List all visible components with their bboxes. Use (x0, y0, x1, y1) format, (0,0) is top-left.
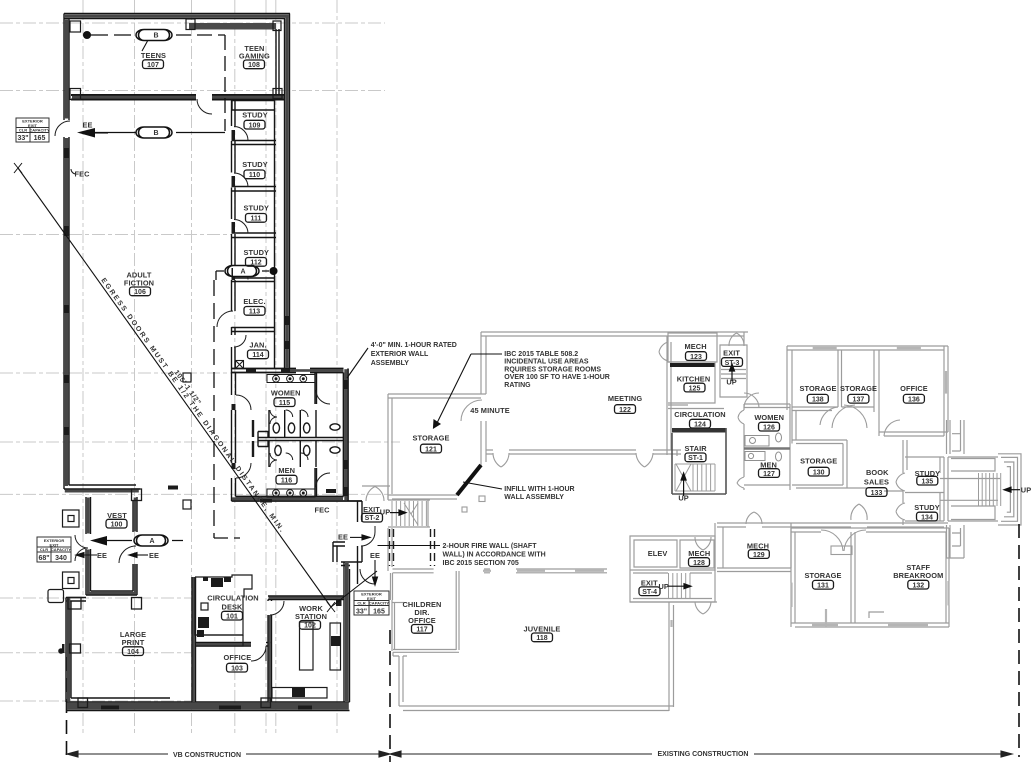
svg-text:SALES: SALES (864, 478, 889, 487)
svg-text:INFILL WITH 1-HOUR: INFILL WITH 1-HOUR (504, 486, 574, 493)
svg-text:121: 121 (425, 446, 437, 453)
svg-text:EE: EE (338, 533, 348, 542)
svg-text:117: 117 (416, 627, 427, 634)
svg-text:STORAGE: STORAGE (840, 384, 877, 393)
svg-text:45 MINUTE: 45 MINUTE (470, 406, 510, 415)
svg-text:104: 104 (127, 649, 139, 656)
svg-text:ELEC.: ELEC. (243, 297, 265, 306)
svg-text:PRINT: PRINT (122, 638, 145, 647)
svg-text:130: 130 (813, 469, 825, 476)
svg-text:STUDY: STUDY (242, 160, 268, 169)
svg-text:UP: UP (380, 508, 390, 517)
svg-text:GAMING: GAMING (239, 51, 270, 60)
svg-text:135: 135 (921, 478, 933, 485)
svg-text:STAIR: STAIR (685, 444, 708, 453)
svg-text:133: 133 (871, 490, 883, 497)
svg-text:102: 102 (304, 623, 316, 630)
svg-text:FEC: FEC (314, 506, 330, 515)
svg-text:128: 128 (693, 560, 705, 567)
svg-text:RQUIRES STORAGE ROOMS: RQUIRES STORAGE ROOMS (504, 366, 601, 373)
svg-text:138: 138 (812, 397, 824, 404)
svg-text:127: 127 (763, 471, 775, 478)
svg-text:STUDY: STUDY (915, 469, 941, 478)
svg-text:MEETING: MEETING (608, 394, 643, 403)
svg-text:136: 136 (908, 397, 920, 404)
svg-text:107: 107 (147, 62, 159, 69)
svg-text:134: 134 (921, 514, 933, 521)
svg-text:CAPACITY: CAPACITY (29, 128, 49, 133)
svg-text:108: 108 (248, 62, 260, 69)
svg-text:123: 123 (690, 354, 702, 361)
svg-text:126: 126 (763, 424, 775, 431)
svg-text:B: B (153, 130, 158, 137)
svg-text:STORAGE: STORAGE (800, 457, 837, 466)
svg-text:165: 165 (34, 135, 46, 142)
svg-text:VB CONSTRUCTION: VB CONSTRUCTION (173, 752, 241, 759)
svg-text:101: 101 (226, 613, 238, 620)
svg-text:ELEV: ELEV (648, 549, 668, 558)
svg-text:EXIT: EXIT (723, 349, 740, 358)
svg-text:STORAGE: STORAGE (412, 434, 449, 443)
svg-text:STUDY: STUDY (244, 204, 270, 213)
svg-text:OFFICE: OFFICE (900, 384, 928, 393)
svg-text:WOMEN: WOMEN (754, 413, 784, 422)
svg-text:STORAGE: STORAGE (799, 384, 836, 393)
svg-text:100: 100 (111, 521, 123, 528)
svg-text:A: A (149, 538, 154, 545)
svg-text:STORAGE: STORAGE (804, 571, 841, 580)
svg-text:EXTERIOR WALL: EXTERIOR WALL (371, 351, 429, 358)
svg-text:UP: UP (658, 582, 668, 591)
svg-text:OFFICE: OFFICE (224, 653, 252, 662)
svg-text:RATING: RATING (504, 382, 531, 389)
svg-text:TEENS: TEENS (141, 51, 166, 60)
svg-text:VEST: VEST (107, 511, 127, 520)
svg-text:INCIDENTAL USE AREAS: INCIDENTAL USE AREAS (504, 359, 589, 366)
svg-text:MECH: MECH (685, 342, 707, 351)
svg-text:103: 103 (231, 665, 243, 672)
svg-text:MEN: MEN (278, 466, 295, 475)
svg-text:FEC: FEC (74, 170, 90, 179)
svg-text:MECH: MECH (747, 541, 769, 550)
svg-text:112: 112 (250, 260, 261, 267)
svg-text:UP: UP (726, 378, 736, 387)
svg-text:129: 129 (753, 552, 765, 559)
svg-text:109: 109 (249, 122, 261, 129)
svg-text:OVER 100 SF TO HAVE 1-HOUR: OVER 100 SF TO HAVE 1-HOUR (504, 374, 610, 381)
svg-text:UP: UP (678, 493, 688, 502)
svg-text:EE: EE (370, 551, 380, 560)
svg-text:CAPACITY: CAPACITY (369, 601, 389, 606)
svg-text:B: B (153, 33, 158, 40)
svg-text:4'-0" MIN. 1-HOUR RATED: 4'-0" MIN. 1-HOUR RATED (371, 342, 457, 349)
svg-text:124: 124 (694, 421, 706, 428)
svg-text:CLR: CLR (19, 128, 27, 133)
svg-text:125: 125 (689, 385, 701, 392)
svg-text:2-HOUR FIRE WALL (SHAFT: 2-HOUR FIRE WALL (SHAFT (443, 543, 538, 550)
svg-text:BREAKROOM: BREAKROOM (893, 571, 943, 580)
svg-text:115: 115 (279, 400, 290, 407)
svg-text:132: 132 (912, 582, 924, 589)
svg-text:STUDY: STUDY (244, 248, 270, 257)
svg-text:118: 118 (536, 635, 547, 642)
svg-text:CLR: CLR (40, 547, 48, 552)
svg-text:WALL) IN ACCORDANCE WITH: WALL) IN ACCORDANCE WITH (443, 552, 546, 559)
svg-text:STUDY: STUDY (914, 503, 940, 512)
svg-text:BOOK: BOOK (866, 468, 889, 477)
svg-text:EXIT: EXIT (641, 578, 658, 587)
svg-text:111: 111 (251, 216, 262, 223)
svg-text:137: 137 (853, 397, 865, 404)
svg-text:ST-2: ST-2 (365, 515, 380, 522)
svg-text:122: 122 (619, 407, 631, 414)
svg-text:131: 131 (817, 583, 829, 590)
svg-text:STATION: STATION (295, 612, 327, 621)
svg-text:165: 165 (373, 609, 385, 616)
svg-text:340: 340 (55, 555, 67, 562)
svg-text:MEN: MEN (760, 460, 777, 469)
svg-text:ST-4: ST-4 (642, 589, 657, 596)
svg-text:EXISTING CONSTRUCTION: EXISTING CONSTRUCTION (657, 751, 748, 758)
svg-text:OFFICE: OFFICE (408, 616, 436, 625)
svg-text:EE: EE (149, 551, 159, 560)
svg-text:68": 68" (38, 555, 49, 562)
svg-text:IBC 2015 TABLE 508.2: IBC 2015 TABLE 508.2 (504, 351, 578, 358)
svg-text:EXIT: EXIT (363, 505, 380, 514)
svg-text:IBC 2015 SECTION 705: IBC 2015 SECTION 705 (443, 560, 519, 567)
svg-text:WALL ASSEMBLY: WALL ASSEMBLY (504, 494, 564, 501)
svg-text:KITCHEN: KITCHEN (677, 375, 711, 384)
svg-text:CIRCULATION: CIRCULATION (207, 594, 258, 603)
svg-text:FICTION: FICTION (124, 278, 154, 287)
svg-text:UP: UP (1021, 486, 1031, 495)
svg-text:ST-1: ST-1 (688, 455, 703, 462)
svg-text:114: 114 (252, 352, 263, 359)
svg-text:106: 106 (134, 289, 146, 296)
svg-text:33": 33" (17, 135, 28, 142)
svg-text:113: 113 (249, 309, 260, 316)
svg-text:STUDY: STUDY (242, 111, 268, 120)
svg-text:110: 110 (249, 172, 260, 179)
svg-text:EE: EE (97, 551, 107, 560)
svg-text:MECH: MECH (688, 549, 710, 558)
svg-text:JUVENILE: JUVENILE (524, 625, 561, 634)
svg-text:CLR: CLR (357, 601, 365, 606)
svg-text:116: 116 (281, 477, 292, 484)
svg-text:A: A (240, 269, 245, 276)
svg-text:JAN.: JAN. (249, 341, 266, 350)
svg-text:CIRCULATION: CIRCULATION (674, 410, 725, 419)
svg-text:WOMEN: WOMEN (271, 388, 301, 397)
svg-text:ASSEMBLY: ASSEMBLY (371, 360, 410, 367)
svg-text:ST-3: ST-3 (725, 360, 740, 367)
svg-text:EE: EE (82, 121, 92, 130)
svg-text:CAPACITY: CAPACITY (51, 547, 71, 552)
svg-text:33": 33" (356, 609, 367, 616)
svg-text:DESK: DESK (222, 603, 243, 612)
